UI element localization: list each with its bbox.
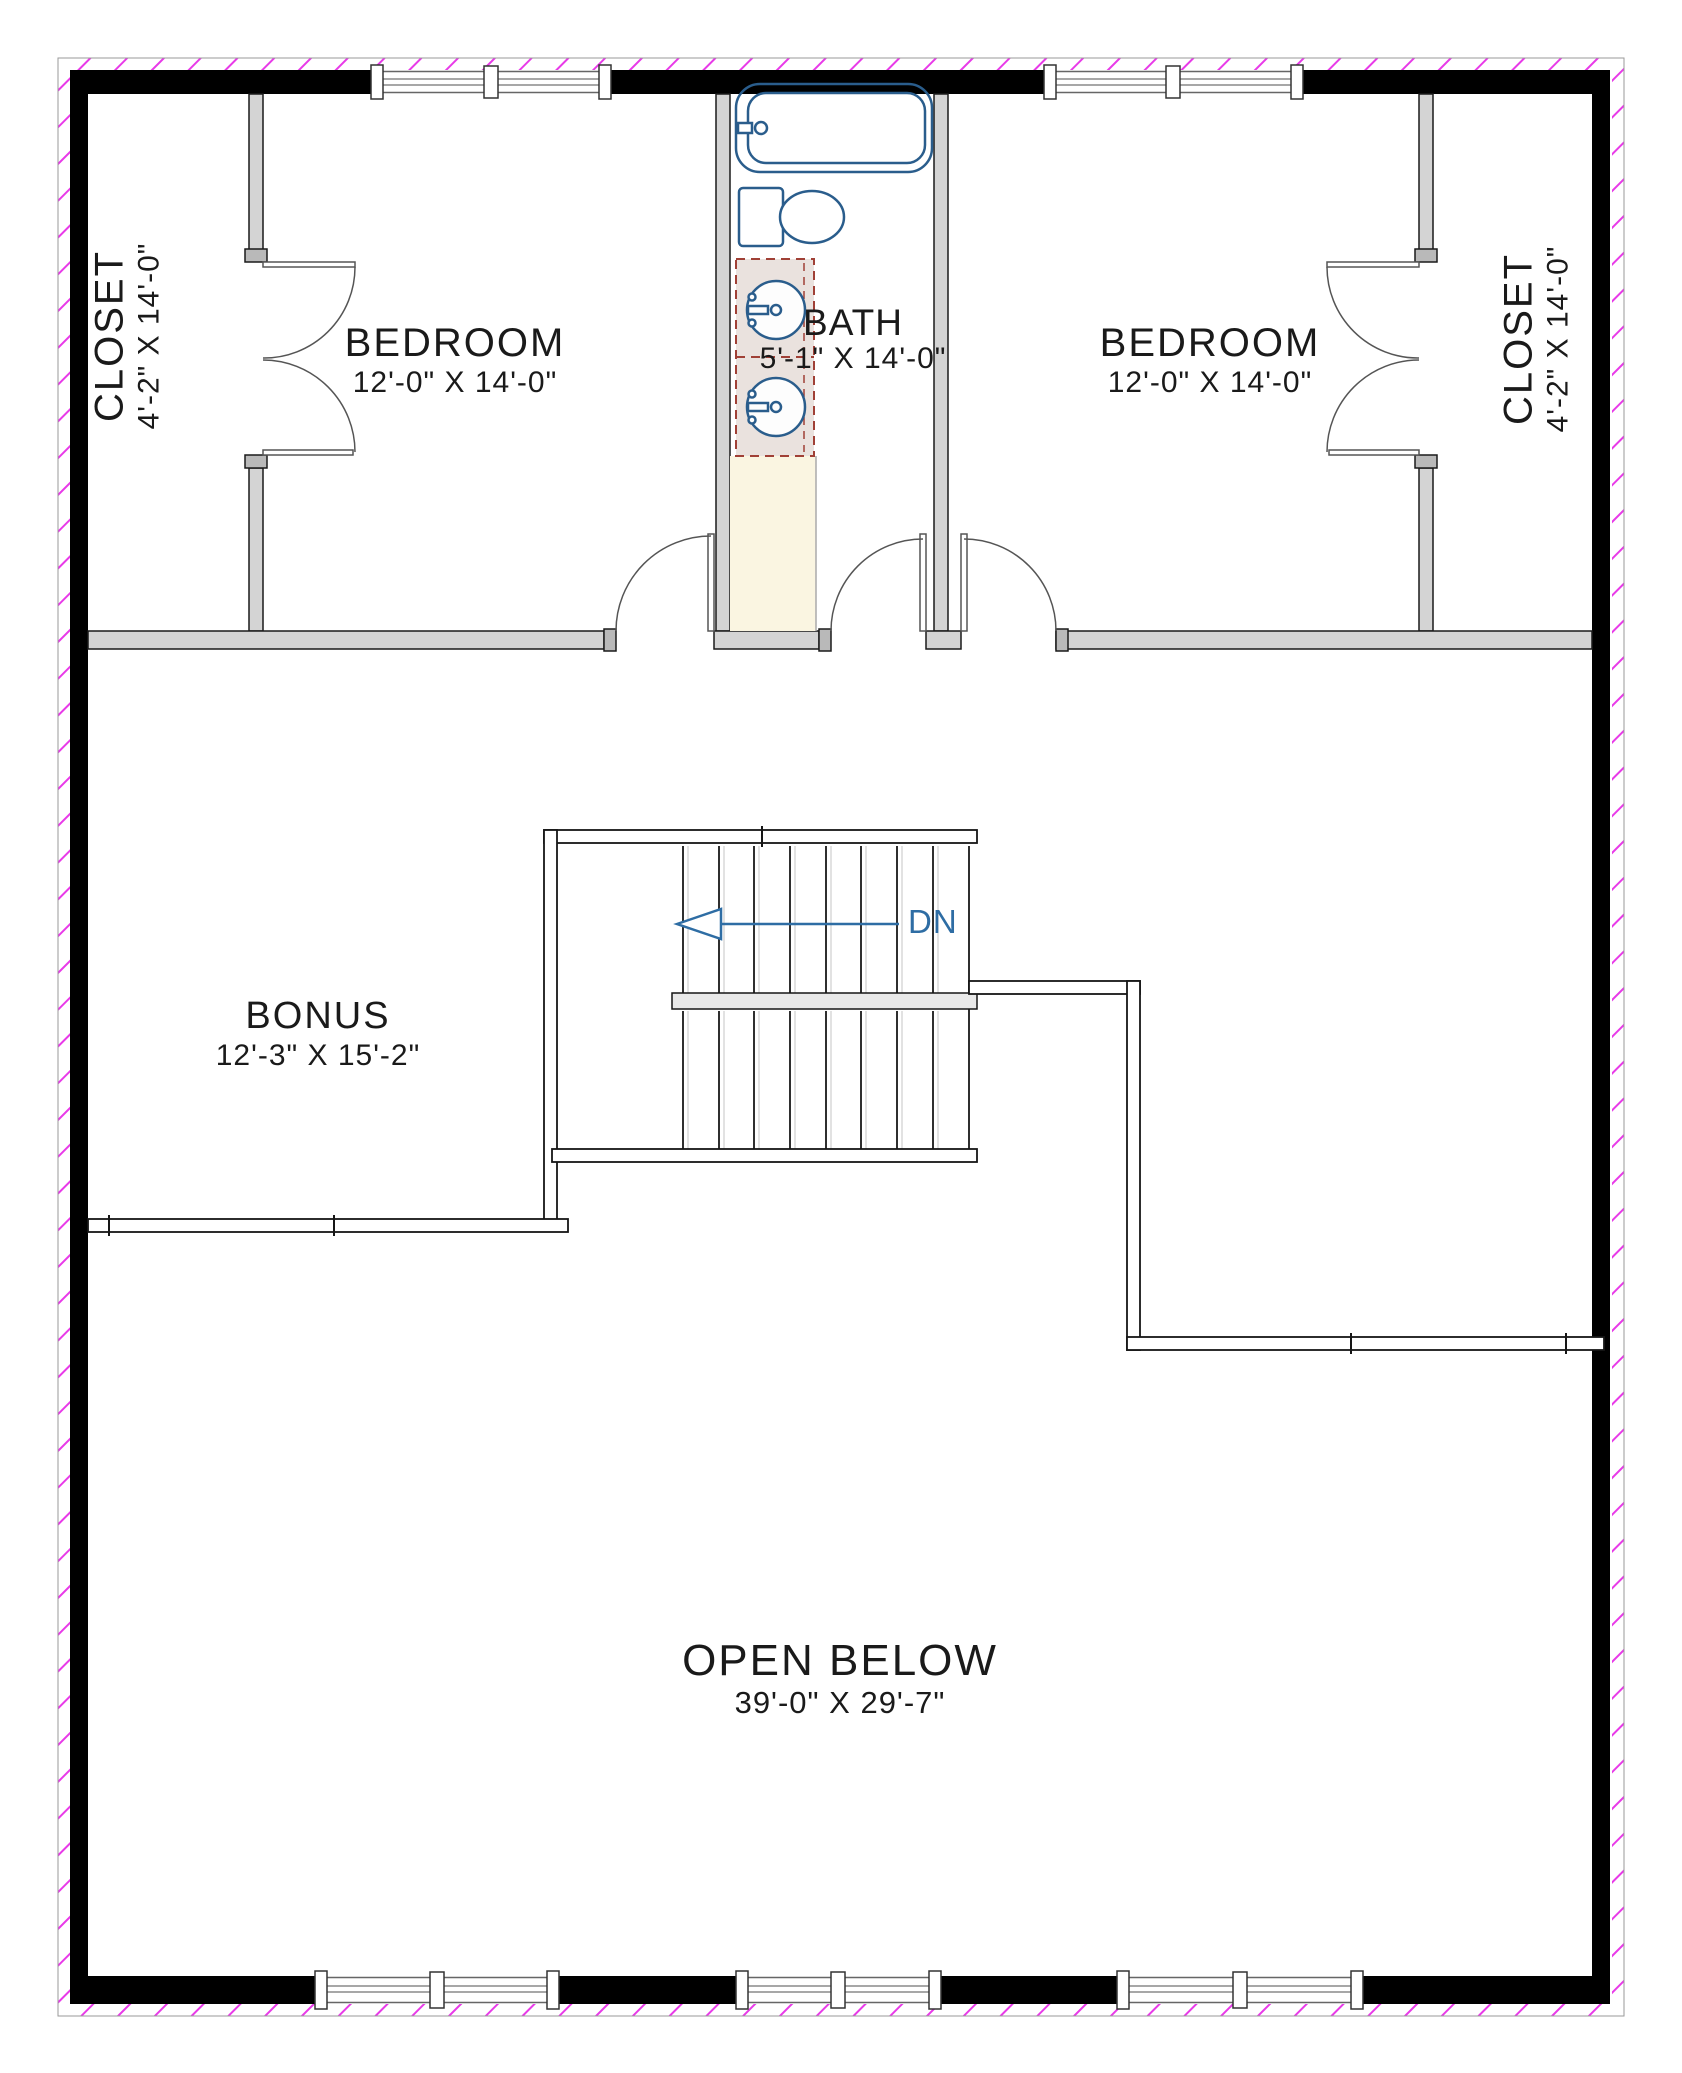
window bbox=[371, 65, 611, 99]
room-dims: 12'-3" X 15'-2" bbox=[216, 1037, 421, 1075]
sink-icon bbox=[747, 378, 805, 436]
room-name: BATH bbox=[760, 304, 947, 341]
bath-label: BATH 5'-1" X 14'-0" bbox=[760, 304, 947, 377]
bathtub-icon bbox=[736, 84, 932, 172]
bedroom-right-door bbox=[961, 534, 1056, 631]
floor-plan: CLOSET 4'-2" X 14'-0" BEDROOM 12'-0" X 1… bbox=[0, 0, 1682, 2073]
closet-left-label: CLOSET 4'-2" X 14'-0" bbox=[88, 243, 168, 430]
bath-door bbox=[831, 534, 926, 631]
bonus-label: BONUS 12'-3" X 15'-2" bbox=[216, 997, 421, 1074]
open-below-label: OPEN BELOW 39'-0" X 29'-7" bbox=[682, 1638, 998, 1723]
bath-floor bbox=[730, 456, 816, 631]
closet-right-label: CLOSET 4'-2" X 14'-0" bbox=[1497, 246, 1577, 433]
room-name: OPEN BELOW bbox=[682, 1638, 998, 1684]
room-name: BEDROOM bbox=[1100, 322, 1321, 364]
window bbox=[1044, 65, 1303, 99]
bedroom-left-label: BEDROOM 12'-0" X 14'-0" bbox=[345, 322, 566, 402]
room-dims: 5'-1" X 14'-0" bbox=[760, 341, 947, 377]
window bbox=[736, 1971, 941, 2009]
window bbox=[1117, 1971, 1363, 2009]
bedroom-left-door bbox=[616, 534, 714, 631]
toilet-icon bbox=[739, 188, 844, 246]
room-dims: 4'-2" X 14'-0" bbox=[1539, 246, 1577, 433]
closet-left-doors bbox=[263, 262, 355, 455]
room-name: CLOSET bbox=[1497, 246, 1539, 433]
bedroom-right-label: BEDROOM 12'-0" X 14'-0" bbox=[1100, 322, 1321, 402]
room-dims: 39'-0" X 29'-7" bbox=[682, 1684, 998, 1723]
closet-right-doors bbox=[1327, 262, 1419, 455]
room-name: CLOSET bbox=[88, 243, 130, 430]
stairs-down-label: DN bbox=[908, 903, 958, 941]
room-dims: 4'-2" X 14'-0" bbox=[130, 243, 168, 430]
stairs bbox=[672, 846, 977, 1149]
room-name: BONUS bbox=[216, 997, 421, 1037]
window bbox=[315, 1971, 559, 2009]
room-name: BEDROOM bbox=[345, 322, 566, 364]
railings bbox=[88, 826, 1604, 1354]
room-dims: 12'-0" X 14'-0" bbox=[1100, 364, 1321, 402]
room-dims: 12'-0" X 14'-0" bbox=[345, 364, 566, 402]
